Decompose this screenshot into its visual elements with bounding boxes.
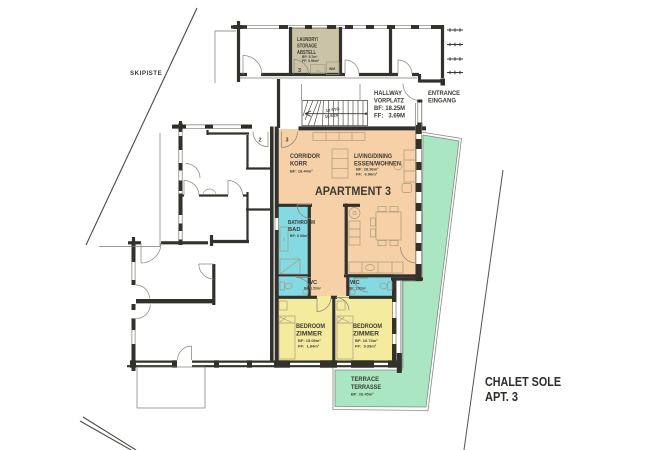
svg-text:ZIMMER: ZIMMER — [353, 331, 379, 338]
svg-text:STORAGE: STORAGE — [297, 44, 317, 50]
svg-text:BEDROOM: BEDROOM — [296, 323, 325, 330]
svg-text:ENTRANCE: ENTRANCE — [428, 90, 461, 97]
svg-text:FF: 3.69M: FF: 3.69M — [374, 113, 405, 120]
svg-text:CORRIDOR: CORRIDOR — [290, 153, 320, 160]
svg-text:FF: 1.84m²: FF: 1.84m² — [298, 343, 320, 348]
svg-text:SKIPISTE: SKIPISTE — [130, 70, 162, 77]
svg-text:APARTMENT 3: APARTMENT 3 — [315, 184, 391, 198]
svg-text:BF: 15.05m²: BF: 15.05m² — [298, 338, 321, 343]
svg-text:APT. 3: APT. 3 — [485, 389, 518, 404]
svg-text:LAUNDRY/: LAUNDRY/ — [297, 37, 318, 43]
svg-text:BF: 28.96m²: BF: 28.96m² — [356, 166, 379, 171]
svg-text:ZIMMER: ZIMMER — [296, 331, 322, 338]
svg-text:VORPLATZ: VORPLATZ — [374, 98, 404, 105]
svg-text:3: 3 — [286, 138, 289, 144]
svg-text:BF: 6.08m²: BF: 6.08m² — [290, 234, 309, 238]
svg-text:2: 2 — [259, 138, 262, 144]
svg-text:WM: WM — [329, 67, 335, 71]
svg-text:KORR: KORR — [290, 161, 307, 168]
svg-text:BATHROOM: BATHROOM — [288, 220, 315, 226]
svg-text:FF: 6.96m²: FF: 6.96m² — [356, 172, 378, 177]
svg-text:FF: 9.33m²: FF: 9.33m² — [355, 343, 377, 348]
svg-text:BF: 10.73m²: BF: 10.73m² — [355, 338, 378, 343]
svg-text:BF: 18.25M: BF: 18.25M — [374, 105, 405, 112]
svg-text:BF: 26.45m²: BF: 26.45m² — [351, 392, 374, 397]
svg-text:BF: 18.44m²: BF: 18.44m² — [290, 169, 313, 174]
svg-text:FF: 0.96m²: FF: 0.96m² — [302, 59, 320, 63]
svg-text:3: 3 — [298, 68, 301, 74]
svg-text:BAD: BAD — [288, 227, 301, 233]
svg-text:LIVING/DINING: LIVING/DINING — [354, 153, 392, 160]
svg-text:WC: WC — [350, 280, 360, 286]
svg-text:EINGANG: EINGANG — [428, 98, 456, 105]
svg-text:BEDROOM: BEDROOM — [353, 323, 382, 330]
svg-text:WC: WC — [308, 280, 318, 286]
svg-text:TERRASSE: TERRASSE — [351, 384, 382, 391]
svg-text:HALLWAY: HALLWAY — [374, 90, 403, 97]
svg-text:TERRACE: TERRACE — [351, 376, 380, 383]
svg-text:CHALET SOLE: CHALET SOLE — [485, 374, 561, 389]
